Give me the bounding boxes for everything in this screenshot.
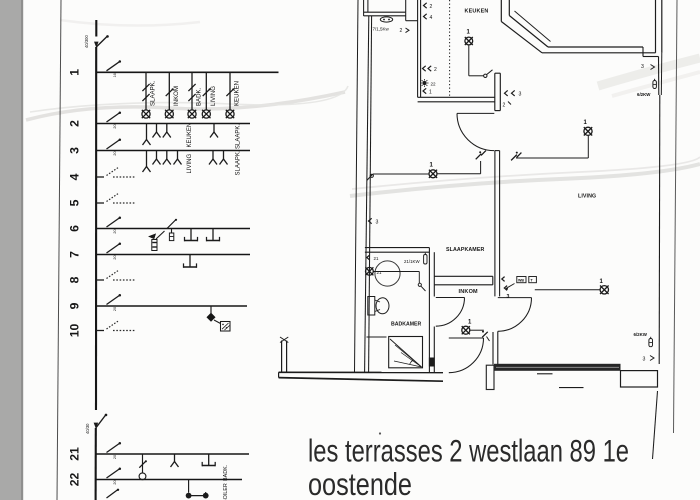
- svg-text:6/2KW: 6/2KW: [637, 92, 651, 97]
- svg-text:10: 10: [68, 324, 82, 338]
- svg-text:9: 9: [68, 302, 82, 309]
- svg-text:INKOM: INKOM: [173, 86, 180, 106]
- svg-text:7: 7: [68, 251, 82, 258]
- svg-text:20: 20: [113, 480, 117, 484]
- svg-text:21: 21: [377, 270, 382, 275]
- svg-text:INKOM: INKOM: [459, 289, 479, 295]
- svg-text:1: 1: [429, 90, 432, 96]
- svg-text:2: 2: [68, 120, 82, 127]
- svg-text:oostende: oostende: [308, 466, 412, 500]
- svg-text:16: 16: [113, 73, 117, 77]
- svg-text:4: 4: [68, 173, 82, 180]
- svg-text:20: 20: [113, 151, 117, 155]
- svg-text:40/30: 40/30: [85, 423, 90, 434]
- svg-text:SLAAPKAMER: SLAAPKAMER: [446, 247, 484, 253]
- svg-text:5: 5: [68, 199, 82, 206]
- svg-text:WB: WB: [518, 279, 524, 283]
- svg-text:3: 3: [643, 357, 646, 363]
- svg-text:KEUKEN: KEUKEN: [465, 9, 489, 15]
- svg-text:3: 3: [68, 147, 82, 154]
- svg-text:LIVING: LIVING: [210, 86, 217, 106]
- svg-text:21: 21: [68, 447, 82, 461]
- svg-text:2: 2: [430, 4, 433, 10]
- svg-text:1: 1: [68, 69, 82, 76]
- svg-text:BADK.: BADK.: [196, 87, 203, 106]
- svg-text:20: 20: [113, 307, 117, 311]
- svg-text:3: 3: [519, 92, 522, 98]
- svg-text:4: 4: [430, 15, 433, 21]
- svg-text:6/2KW: 6/2KW: [634, 332, 648, 337]
- svg-text:22: 22: [431, 82, 437, 87]
- svg-text:40/300: 40/300: [84, 35, 89, 48]
- svg-text:20: 20: [113, 229, 117, 233]
- svg-text:les terrasses 2 westlaan 89 1e: les terrasses 2 westlaan 89 1e: [308, 433, 629, 469]
- svg-text:2: 2: [503, 103, 506, 109]
- svg-text:7/1,5Kw: 7/1,5Kw: [373, 27, 390, 32]
- svg-text:2: 2: [434, 67, 437, 73]
- svg-text:LIVING: LIVING: [187, 153, 193, 173]
- svg-text:2: 2: [400, 28, 403, 34]
- svg-text:20: 20: [113, 455, 117, 459]
- svg-text:20: 20: [113, 124, 117, 128]
- svg-text:21: 21: [374, 256, 379, 261]
- svg-text:3: 3: [376, 220, 379, 226]
- svg-text:KEUKEN: KEUKEN: [234, 81, 241, 106]
- svg-text:SLAAPK.: SLAAPK.: [236, 150, 242, 175]
- svg-text:22: 22: [68, 473, 82, 487]
- svg-text:LIVING: LIVING: [578, 194, 596, 200]
- svg-text:6: 6: [68, 225, 82, 232]
- svg-text:3: 3: [507, 294, 510, 300]
- svg-text:8: 8: [68, 276, 82, 283]
- svg-text:SLAAPK.: SLAAPK.: [150, 80, 157, 106]
- svg-text:SLAAPK.: SLAAPK.: [236, 124, 242, 149]
- svg-text:BADK.: BADK.: [223, 465, 229, 481]
- svg-text:20: 20: [113, 255, 117, 259]
- svg-text:BOILER: BOILER: [223, 483, 229, 500]
- svg-text:3: 3: [641, 64, 644, 70]
- svg-text:BADKAMER: BADKAMER: [391, 322, 422, 328]
- svg-text:21/1KW: 21/1KW: [404, 259, 420, 264]
- svg-text:KEUKEN: KEUKEN: [187, 123, 193, 148]
